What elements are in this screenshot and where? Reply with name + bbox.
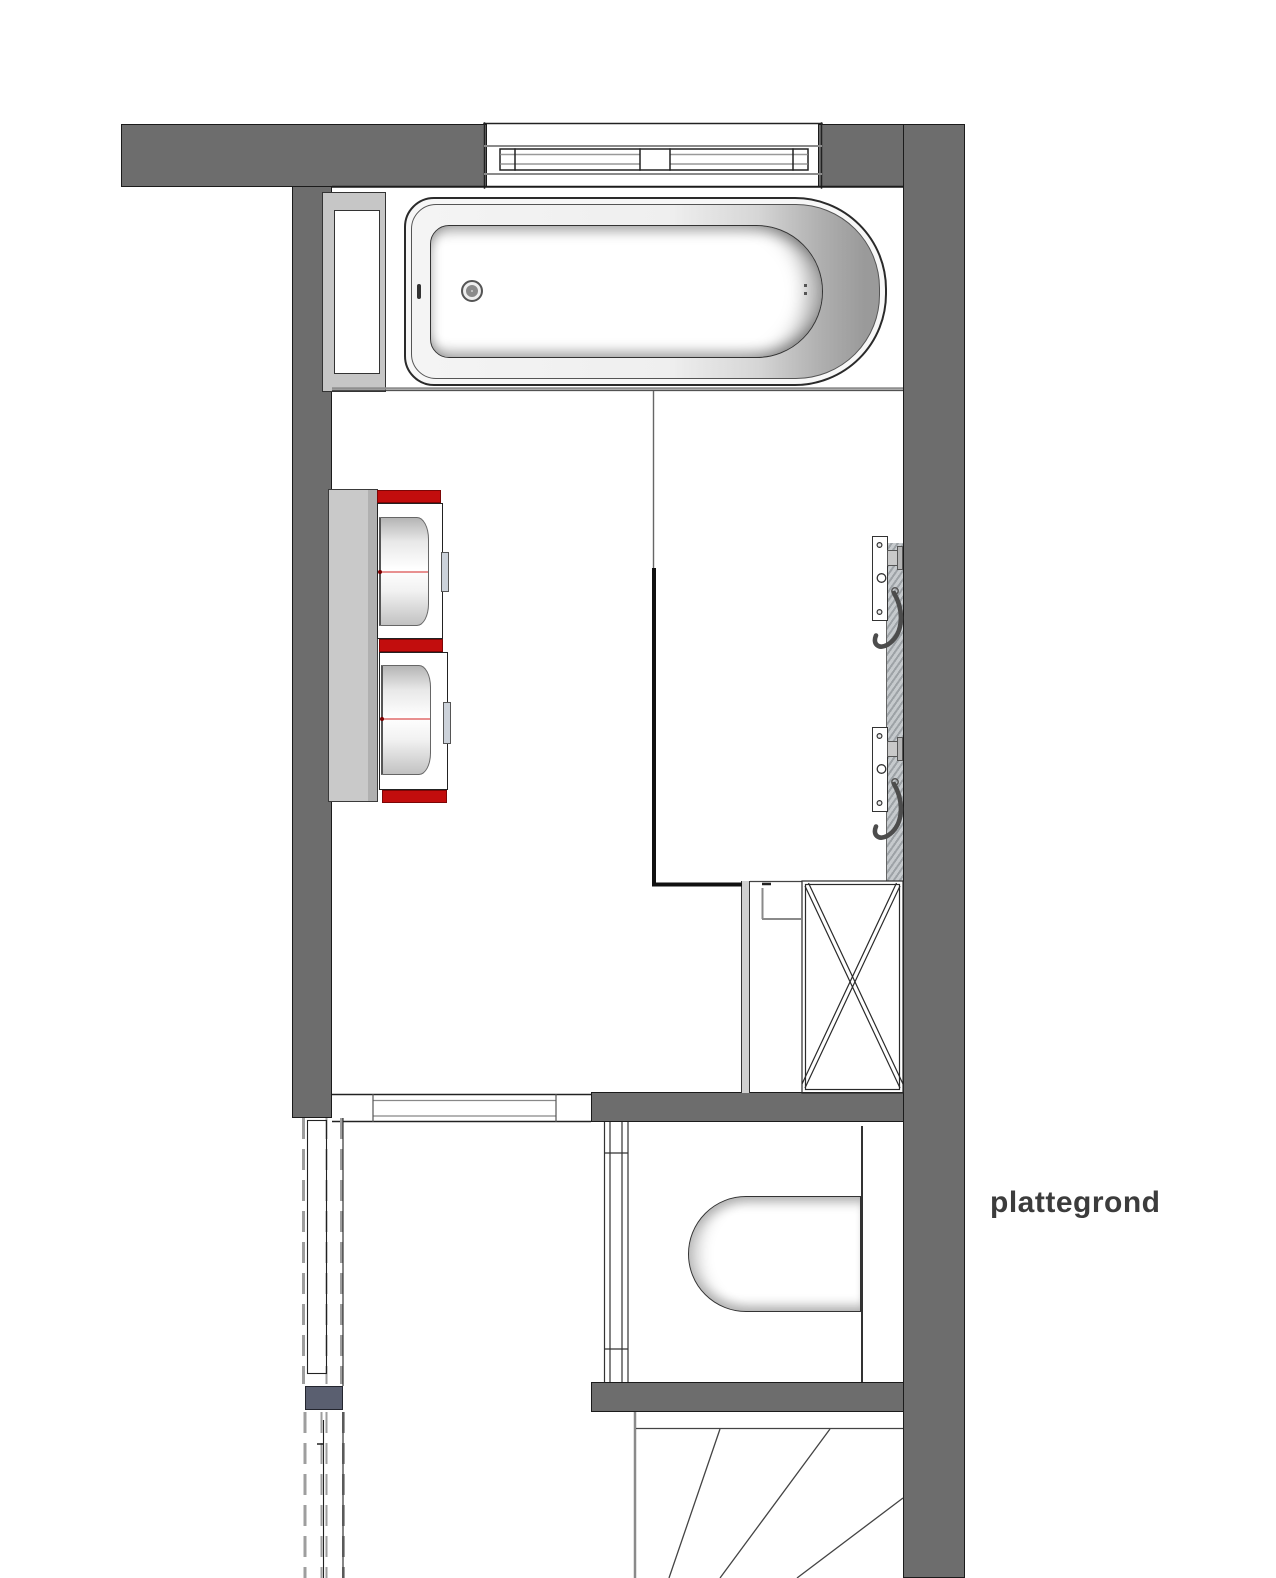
glass-wall-band — [332, 1094, 591, 1122]
shower-valve-plate-1 — [872, 536, 888, 621]
bathtub-faucet-dot — [804, 292, 807, 295]
washer-drum-dot — [378, 570, 382, 574]
stair-tread-line — [797, 1498, 903, 1578]
dryer-handle — [443, 702, 451, 744]
shower-valve-plate-2 — [872, 727, 888, 812]
washer-red-band-middle — [379, 639, 443, 652]
washer-handle — [441, 552, 449, 592]
door-leaf — [308, 1121, 327, 1374]
shower-partition — [741, 881, 750, 1093]
storage-niche-opening — [334, 210, 380, 374]
dryer-drum-line — [382, 718, 430, 720]
door-post-block — [305, 1386, 343, 1410]
bathtub-drain-icon — [461, 280, 483, 302]
washer-panel-edge — [368, 490, 377, 801]
shaft-cross-box — [802, 881, 903, 1093]
shower-valve-cap-1 — [897, 546, 903, 570]
toilet — [688, 1196, 861, 1312]
dryer-drum-dot — [380, 717, 384, 721]
window — [484, 123, 822, 188]
sliding-door — [304, 1118, 344, 1578]
floor-plan-canvas: plattegrond — [0, 0, 1276, 1578]
shower-divider — [652, 391, 802, 919]
washer-red-band-bottom — [382, 790, 447, 803]
washer-red-band-top — [377, 490, 441, 503]
bathtub-faucet-dot — [804, 284, 807, 287]
wall-toilet-bottom — [591, 1382, 904, 1412]
bathtub-basin — [430, 225, 823, 358]
plan-title: plattegrond — [990, 1186, 1161, 1220]
bathtub-overflow-icon — [417, 284, 421, 299]
wall-right — [903, 124, 965, 1578]
wall-top-left — [121, 124, 487, 187]
window-mullion — [640, 150, 670, 169]
dryer-drum — [381, 665, 431, 775]
winder-stairs — [635, 1412, 903, 1578]
shower-valve-cap-2 — [897, 737, 903, 761]
washer-drum-line — [380, 571, 428, 573]
shower-tile-strip — [886, 543, 903, 881]
stair-tread-line — [720, 1429, 830, 1578]
wall-mid-horizontal — [591, 1092, 904, 1122]
stair-tread-line — [669, 1429, 720, 1578]
